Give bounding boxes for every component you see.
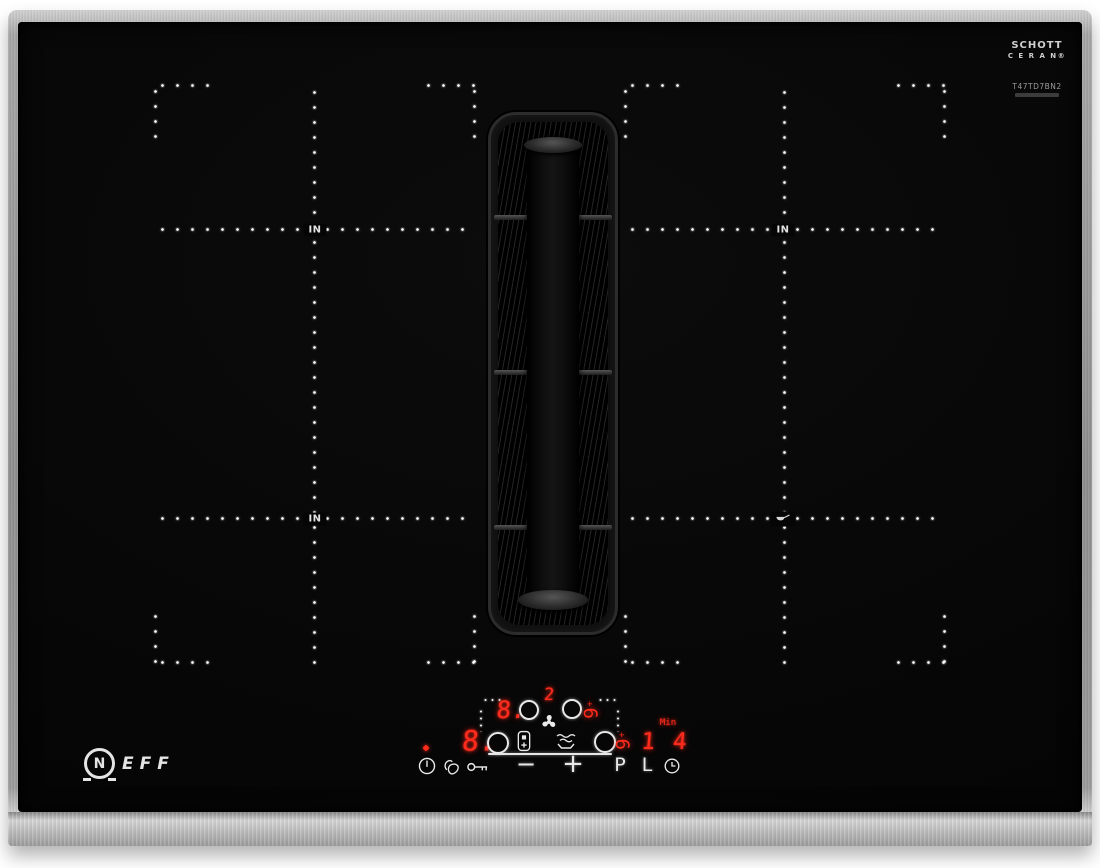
zone-corner-mark (421, 84, 475, 87)
zone-corner-mark (624, 609, 627, 663)
zone-select-key-left-back[interactable] (519, 700, 539, 720)
lock-button[interactable]: L (642, 754, 653, 776)
zone-corner-mark (943, 84, 946, 138)
zone-in-label-left-front: IN (303, 513, 326, 526)
steel-trim-bottom (8, 812, 1092, 846)
zone-level-display-right-back: +6 (579, 701, 601, 719)
neff-wordmark: EFF (122, 754, 175, 774)
neff-logo: N EFF (84, 748, 175, 779)
key-icon[interactable] (466, 760, 491, 774)
schott-line2: C E R A N® (1002, 52, 1072, 60)
zone-corner-mark (473, 84, 476, 138)
power-icon[interactable] (417, 756, 438, 777)
zone-corner-mark (155, 84, 209, 87)
fan-level-display: 2 (543, 685, 555, 705)
display-bracket-dots (617, 708, 619, 732)
decrease-button[interactable]: − (516, 750, 536, 778)
clock-icon[interactable] (663, 757, 682, 776)
schott-ceran-logo: SCHOTT C E R A N® (1002, 40, 1072, 60)
zone-level-display-right-front: +6 (611, 732, 633, 750)
zone-corner-mark (891, 84, 945, 87)
zone-in-label-right-back: IN (771, 224, 794, 237)
vent-filter-handle-bottom[interactable] (518, 590, 588, 610)
downdraft-vent-module (488, 112, 618, 635)
increase-button[interactable]: + (562, 749, 584, 779)
control-separator-line (488, 753, 612, 755)
fan-icon[interactable] (539, 712, 560, 733)
zone-in-label-left-back: IN (303, 224, 326, 237)
vent-filter-handle-top[interactable] (524, 137, 582, 153)
cooktop-product-photo: IN IN IN 8. 2 +6 8. (0, 0, 1100, 868)
zone-corner-mark (624, 84, 627, 138)
zone-dot-line (313, 85, 316, 664)
zone-corner-mark (943, 609, 946, 663)
vent-center-channel (527, 137, 579, 610)
zone-dot-line (783, 85, 786, 664)
zone-corner-mark (154, 609, 157, 663)
neff-emblem-letter: N (94, 756, 106, 772)
zone-select-key-left-front[interactable] (487, 732, 509, 754)
schott-line1: SCHOTT (1002, 40, 1072, 52)
neff-emblem: N (84, 748, 115, 779)
zone-corner-mark (625, 84, 679, 87)
zone-corner-mark (155, 661, 209, 664)
timer-value-display: 1 4 (640, 729, 690, 755)
zone-corner-mark (154, 84, 157, 138)
model-number: T47TD7BN2 (1002, 82, 1072, 91)
zone-corner-mark (473, 609, 476, 663)
wipe-protection-icon[interactable] (441, 756, 464, 777)
pan-icon (771, 512, 796, 527)
zone-corner-mark (421, 661, 475, 664)
model-serial-smudge (1015, 93, 1059, 97)
power-boost-button[interactable]: P (614, 754, 625, 776)
vent-steam-icon[interactable] (553, 731, 579, 751)
timer-unit-label: Min (660, 718, 676, 728)
zone-corner-mark (891, 661, 945, 664)
zone-corner-mark (625, 661, 679, 664)
